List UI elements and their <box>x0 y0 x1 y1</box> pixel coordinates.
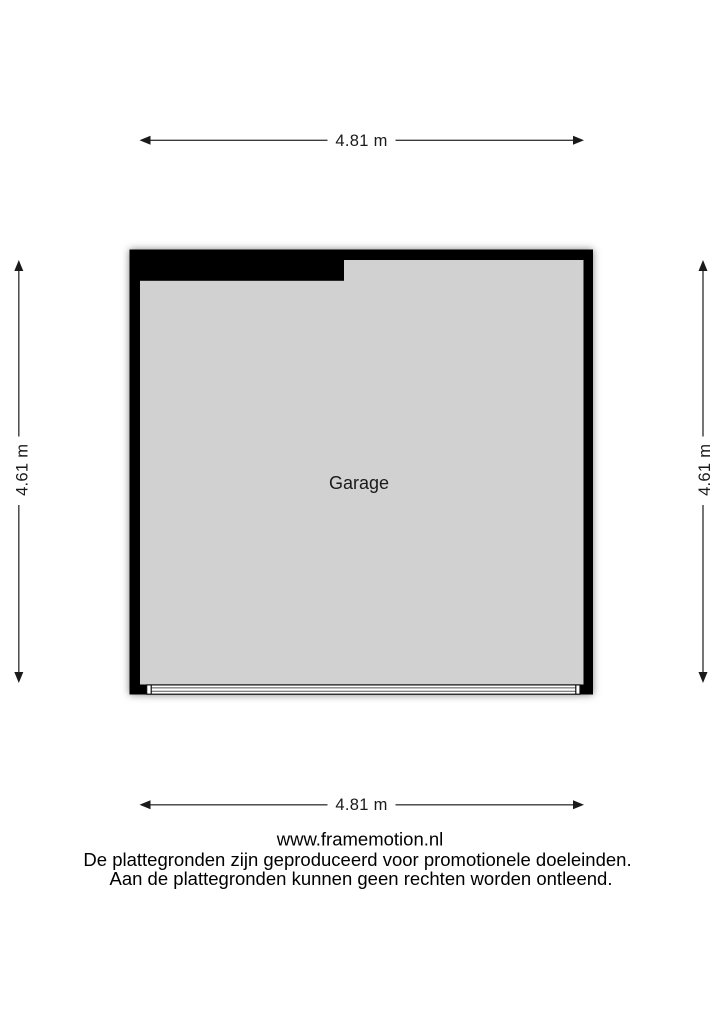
svg-text:4.61 m: 4.61 m <box>14 444 32 496</box>
svg-text:www.framemotion.nl: www.framemotion.nl <box>276 829 444 850</box>
svg-text:Garage: Garage <box>329 473 389 493</box>
svg-text:4.81 m: 4.81 m <box>335 796 387 814</box>
svg-text:4.81 m: 4.81 m <box>335 132 387 150</box>
svg-text:4.61 m: 4.61 m <box>696 444 714 496</box>
svg-text:Aan de plattegronden kunnen ge: Aan de plattegronden kunnen geen rechten… <box>110 868 613 889</box>
